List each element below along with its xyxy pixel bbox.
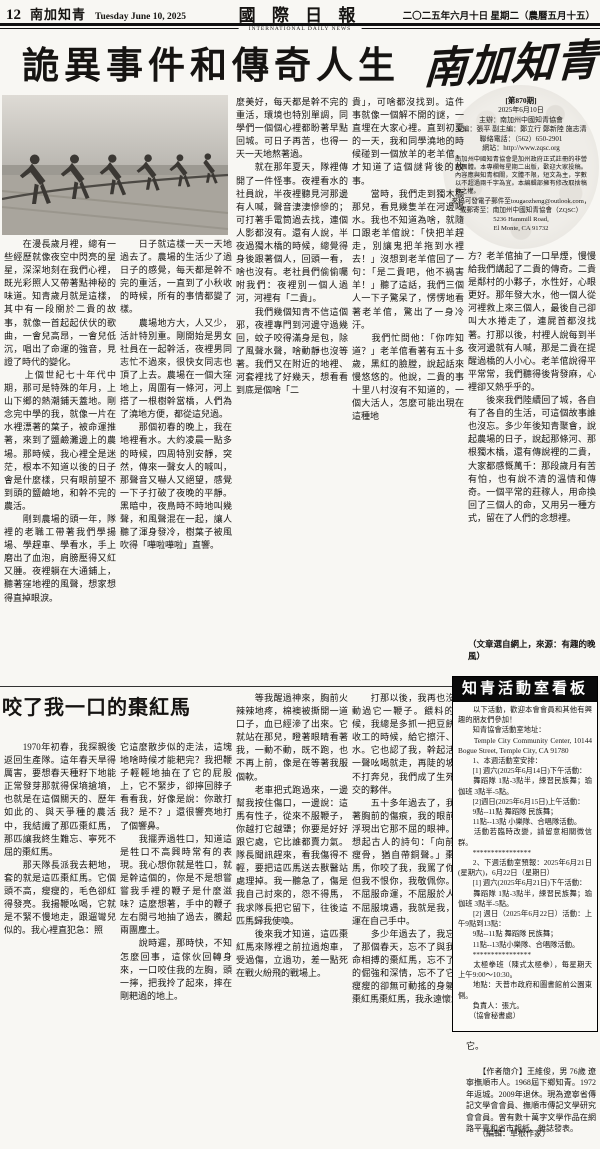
second-article-column-1: 1970年初春，我探親後返回生產隊。這年春天旱得厲害，要想春天種籽下地能正常發芽… bbox=[4, 741, 116, 1141]
main-article-column-4: 貴」，可啥都沒找到。這件事就像一個解不開的謎，一直埋在大家心裡。直到初夏的一天，… bbox=[352, 96, 464, 686]
issue-date: 2025年6月10日 bbox=[443, 106, 599, 116]
mail-line: 或郵寄至：南加州中國知青協會（ZQSC） bbox=[443, 206, 599, 215]
submission-notice: 南加州中國知青協會是加州政府正式註冊的非營利團體。本專欄每星期二出版，歡迎大家投… bbox=[443, 154, 599, 197]
main-headline: 詭異事件和傳奇人生 bbox=[22, 35, 434, 89]
newspaper-page: 12 南加知青 Tuesday June 10, 2025 國 際 日 報 IN… bbox=[0, 0, 600, 1149]
header-left: 12 南加知青 Tuesday June 10, 2025 bbox=[6, 4, 186, 24]
second-article-column-4: 打那以後，我再也沒有動過它一鞭子。餵料的時候，我總是多抓一把豆餅；收工的時候，給… bbox=[352, 692, 464, 1142]
address-line-1: 5236 Hammill Road, bbox=[443, 215, 599, 224]
website-line: 網站：http://www.zqsc.org bbox=[443, 144, 599, 154]
paper-subtitle: INTERNATIONAL DAILY NEWS bbox=[239, 26, 362, 32]
host-org: 主辦：南加州中國知青協會 bbox=[443, 116, 599, 126]
activity-board: 知青活動室看板 以下活動，歡迎本會會員和其他有興趣的朋友們參加！ 知青協會活動室… bbox=[452, 676, 598, 1032]
main-article-column-1: 在漫長歲月裡，總有一些經歷就像夜空中閃亮的星星，深深地刻在我們心裡，既光彩照人又… bbox=[4, 238, 116, 686]
second-article-tail: 它。 bbox=[466, 1040, 596, 1053]
publication-info-box: [第870期] 2025年6月10日 主辦：南加州中國知青協會 主編：張平 副主… bbox=[443, 85, 599, 249]
article-source-note: （文章選自網上，來源：有趣的晚風） bbox=[468, 638, 596, 662]
second-article-column-2: 它這麼散步似的走法，這塊地啥時候才能耙完？我把鞭子輕輕地抽在了它的屁股上，它不緊… bbox=[120, 741, 232, 1141]
editor-credit: （編輯：草根作家） bbox=[466, 1128, 596, 1139]
second-article-headline: 咬了我一口的棗紅馬 bbox=[2, 691, 202, 720]
date-chinese: 二〇二五年六月十日 星期二（農曆五月十五） bbox=[403, 8, 595, 22]
second-article-column-3: 等我醒過神來，胸前火辣辣地疼，棉襖被撕開一道口子，血已經滲了出來。它就站在那兒，… bbox=[236, 692, 348, 1142]
submit-email-line: 來稿可發電子郵件至tougaozheng@outlook.com， bbox=[443, 197, 599, 206]
contact-phone: 聯絡電話：（562）650-2901 bbox=[443, 135, 599, 145]
address-line-2: El Monte, CA 91732 bbox=[443, 224, 599, 233]
activity-board-title: 知青活動室看板 bbox=[453, 677, 597, 702]
date-english: Tuesday June 10, 2025 bbox=[95, 12, 186, 22]
main-article-column-2: 日子就這樣一天一天地過去了。農場的生活少了過日子的感覺，每天都是幹不完的重活，一… bbox=[120, 238, 232, 686]
activity-board-body: 以下活動，歡迎本會會員和其他有興趣的朋友們參加！ 知青協會活動室地址： Temp… bbox=[453, 702, 597, 1024]
page-number: 12 bbox=[6, 7, 21, 24]
section-divider-rule bbox=[0, 686, 452, 687]
issue-number: [第870期] bbox=[443, 95, 599, 106]
editors-line: 主編：張平 副主編：鄭立行 鄭新陸 施志清 bbox=[443, 125, 599, 135]
tug-photo-illustration bbox=[2, 95, 228, 235]
paper-logo: 國 際 日 報 INTERNATIONAL DAILY NEWS bbox=[239, 1, 362, 32]
section-name: 南加知青 bbox=[30, 4, 86, 23]
main-article-column-5: 方？老羊倌抽了一口旱煙，慢慢給我們講起了二貴的傳奇。二貴是鄰村的小夥子，水性好，… bbox=[468, 250, 596, 634]
main-article-column-3: 麼美好，每天都是幹不完的重活，環境也特別單調，同學們一個個心裡都盼著早點回城。可… bbox=[236, 96, 348, 686]
author-bio: 【作者簡介】王維俊，男 76歲 遼寧撫順市人。1968屆下鄉知青。1972年返城… bbox=[466, 1066, 596, 1134]
tug-photo bbox=[2, 95, 228, 235]
paper-name: 國 際 日 報 bbox=[239, 1, 362, 26]
